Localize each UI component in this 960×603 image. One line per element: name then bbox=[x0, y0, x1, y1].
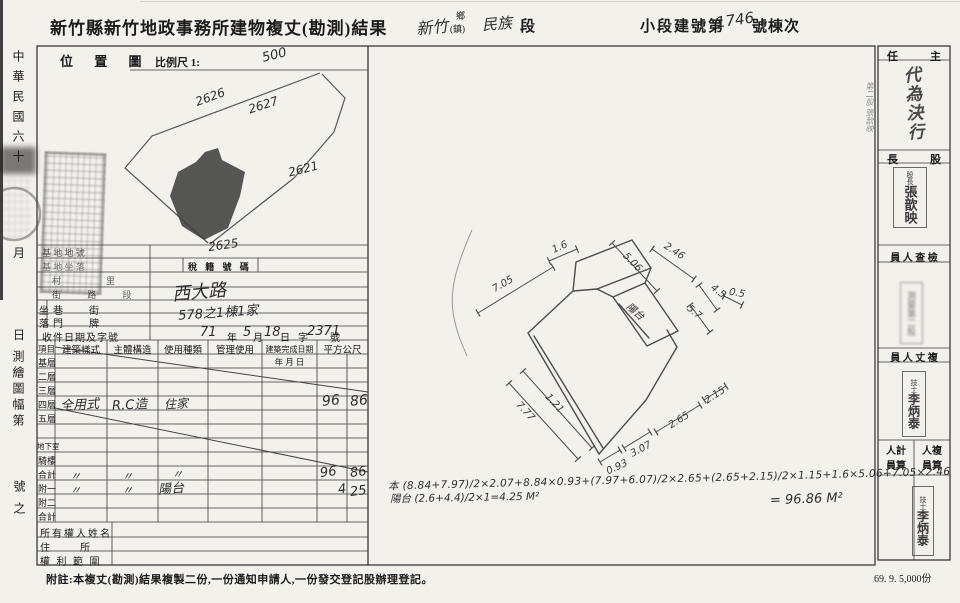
row-label-arcade: 騎樓 bbox=[38, 454, 55, 467]
calculator-label: 人計 員算 bbox=[878, 444, 914, 474]
receipt-day-unit: 日 bbox=[280, 329, 290, 344]
street-row-label: 街 路 段 bbox=[52, 288, 144, 301]
col-header-management: 管理使用 bbox=[208, 342, 262, 356]
inspector-label: 員 人 查 檢 bbox=[882, 249, 946, 264]
annex1-style-ditto: 〃 bbox=[70, 482, 81, 498]
area-formula-balcony: 陽台 (2.6+4.4)/2×1=4.25 M² bbox=[390, 489, 539, 507]
location-vertical-bottom: 落 bbox=[39, 315, 49, 330]
row-label-floor4: 四層 bbox=[38, 398, 55, 411]
subtotal-area-dec: 86 bbox=[349, 464, 367, 481]
floor4-structure-value: R.C造 bbox=[112, 393, 148, 414]
row-label-basement: 地下室 bbox=[37, 441, 56, 452]
stray-pencil-curve bbox=[452, 230, 472, 356]
calc-stamp-title: 技士 bbox=[918, 496, 928, 510]
door-row-label: 門 牌 bbox=[53, 315, 101, 330]
chief-section-label: 任 主 bbox=[878, 48, 950, 64]
surveyor-stamp: 技士 李炳泰 bbox=[902, 371, 926, 437]
village-row-label: 村 里 bbox=[52, 274, 133, 287]
floor4-area-dec: 86 bbox=[349, 392, 368, 410]
calc-label-line1: 人計 bbox=[878, 444, 914, 459]
row-label-floor2: 二層 bbox=[38, 370, 55, 383]
round-stamp bbox=[0, 188, 40, 240]
floor4-use-value: 住家 bbox=[164, 394, 189, 412]
chief-side-note: 第二股 張歆映 bbox=[864, 82, 875, 170]
calc-stamp-name: 李炳泰 bbox=[915, 510, 932, 546]
section-chief-stamp: 股長 張歆映 bbox=[893, 167, 927, 228]
scale-label: 比例尺 1: bbox=[155, 54, 200, 70]
receipt-year-value: 71 bbox=[200, 325, 217, 340]
recheck-label-line2: 員算 bbox=[914, 459, 950, 474]
inspector-stamp-illegible: 測量第二股 bbox=[900, 282, 923, 344]
surveyor-stamp-title: 技士 bbox=[909, 379, 919, 393]
annex1-area-int: 4 bbox=[337, 482, 347, 498]
receipt-month-value: 5 bbox=[243, 325, 251, 340]
row-label-annex2: 附二 bbox=[38, 496, 55, 509]
area-formula-result: = 96.86 M² bbox=[770, 491, 843, 509]
surveyor-stamp-name: 李炳泰 bbox=[906, 393, 923, 429]
row-label-floor3: 三層 bbox=[38, 384, 55, 397]
col-header-item: 項目 bbox=[38, 343, 55, 355]
floor4-area-int: 96 bbox=[321, 392, 340, 410]
col-header-structure: 主體構造 bbox=[107, 342, 158, 356]
footer-note: 附註:本複丈(勘測)結果複製二份,一份通知申請人,一份發交登記股辦理登記。 bbox=[46, 571, 433, 587]
section-chief-stamp-name: 張歆映 bbox=[901, 185, 920, 224]
row-label-annex1: 附一 bbox=[38, 482, 55, 495]
section-chief-left: 長 bbox=[887, 151, 898, 167]
base-parcel-row-label: 基 地 地 號 bbox=[42, 246, 85, 259]
annex1-structure-ditto: 〃 bbox=[122, 482, 133, 498]
rechecker-label: 人複 員算 bbox=[914, 444, 950, 474]
annex1-use-value: 陽台 bbox=[157, 477, 185, 498]
row-label-subtotal: 合計 bbox=[38, 468, 55, 481]
col-header-area: 平方公尺 bbox=[317, 342, 368, 356]
section-chief-label: 長 股 bbox=[878, 151, 950, 167]
address-label: 住 所 bbox=[40, 539, 90, 554]
chief-label-left: 任 bbox=[887, 48, 898, 64]
scanned-survey-document: 新竹縣新竹地政事務所建物複丈(勘測)結果 新竹 鄉 (鎮) 民族 段 小段建號第… bbox=[0, 0, 960, 603]
location-map-title: 位 置 圖 bbox=[60, 51, 151, 70]
rights-scope-label: 權 利 範 圍 bbox=[40, 553, 102, 568]
calculator-stamp: 技士 李炳泰 bbox=[912, 486, 934, 556]
print-code: 69. 9. 5,000份 bbox=[874, 570, 932, 585]
section-chief-right: 股 bbox=[930, 151, 941, 167]
inspector-stamp-text: 測量第二股 bbox=[905, 291, 918, 336]
annex1-area-dec: 25 bbox=[349, 483, 367, 500]
surveyor-label: 員 人 丈 複 bbox=[882, 349, 946, 364]
col-header-use: 使用種類 bbox=[158, 342, 208, 356]
row-label-floor5: 五層 bbox=[38, 412, 55, 425]
col-header-completion-date: 建築完成日期 bbox=[262, 344, 317, 355]
recheck-label-line1: 人複 bbox=[914, 444, 950, 459]
row-label-floor1: 基層 bbox=[38, 356, 55, 369]
subtotal-area-int: 96 bbox=[319, 464, 337, 481]
row-label-total: 合計 bbox=[38, 510, 55, 523]
form-grid-and-sketch-lines bbox=[0, 0, 960, 603]
date-subheader: 年 月 日 bbox=[262, 356, 317, 368]
base-location-row-label: 基 地 坐 落 bbox=[42, 260, 85, 273]
chief-label-right: 主 bbox=[930, 48, 941, 64]
calc-label-line2: 員算 bbox=[878, 459, 914, 474]
building-footprint-blob bbox=[170, 148, 245, 240]
section-chief-stamp-title: 股長 bbox=[905, 171, 915, 185]
owner-name-label: 所有權人姓名 bbox=[40, 525, 112, 540]
floor4-style-value: 全用式 bbox=[60, 393, 100, 414]
tax-number-label: 稅 籍 號 碼 bbox=[188, 260, 256, 273]
col-header-style: 建築樣式 bbox=[55, 342, 107, 356]
receipt-day-value: 18 bbox=[264, 325, 281, 340]
